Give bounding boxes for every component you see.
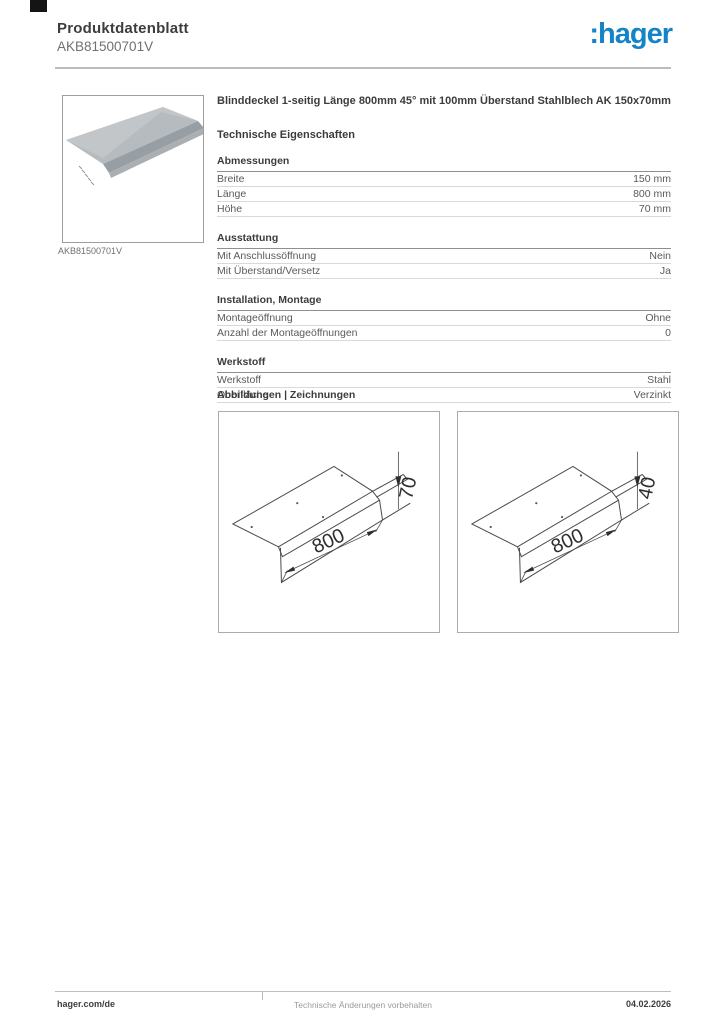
product-image [63,96,203,242]
technical-drawing-1: 800 70 [218,411,440,633]
datasheet-page: Produktdatenblatt AKB81500701V :hager AK… [0,0,724,1024]
footer-divider [262,991,263,1000]
drawings-title: Abbildungen | Zeichnungen [217,389,355,401]
header-rule [55,67,671,69]
spec-row-value: 800 mm [633,188,671,200]
spec-row-value: Ja [660,265,671,277]
footer-rule [55,991,671,992]
technical-drawing-2: 800 40 [457,411,679,633]
corner-mark [30,0,47,12]
product-image-caption: AKB81500701V [58,246,122,256]
footer-date: 04.02.2026 [626,999,671,1009]
length-dimension-label: 800 [548,524,587,558]
spec-row-value: 0 [665,327,671,339]
spec-row: Mit Überstand/Versetz Ja [217,264,671,279]
spec-row-label: Höhe [217,203,242,215]
spec-row-label: Mit Anschlussöffnung [217,250,316,262]
height-dimension-label: 40 [634,475,660,501]
spec-section-installation: Installation, Montage Montageöffnung Ohn… [217,294,671,341]
spec-row-value: Nein [649,250,671,262]
length-dimension-label: 800 [309,524,348,558]
spec-row: Breite 150 mm [217,172,671,187]
spec-row-label: Mit Überstand/Versetz [217,265,320,277]
spec-row-label: Anzahl der Montageöffnungen [217,327,358,339]
spec-section-abmessungen: Abmessungen Breite 150 mm Länge 800 mm H… [217,155,671,217]
spec-row-label: Breite [217,173,244,185]
product-code: AKB81500701V [57,39,153,54]
spec-section-title: Abmessungen [217,155,671,172]
footer-disclaimer: Technische Änderungen vorbehalten [55,1000,671,1010]
spec-row-value: Verzinkt [634,389,671,401]
page-title: Produktdatenblatt [57,20,189,37]
spec-row-value: 150 mm [633,173,671,185]
spec-section-title: Installation, Montage [217,294,671,311]
product-image-frame [62,95,204,243]
spec-row: Werkstoff Stahl [217,373,671,388]
spec-row: Montageöffnung Ohne [217,311,671,326]
spec-row: Mit Anschlussöffnung Nein [217,249,671,264]
spec-row-label: Werkstoff [217,374,261,386]
spec-row-value: Stahl [647,374,671,386]
spec-row: Länge 800 mm [217,187,671,202]
product-description: Blinddeckel 1-seitig Länge 800mm 45° mit… [217,95,671,109]
spec-row: Anzahl der Montageöffnungen 0 [217,326,671,341]
spec-row-value: 70 mm [639,203,671,215]
height-dimension-label: 70 [395,475,421,501]
spec-row-label: Montageöffnung [217,312,293,324]
hager-logo: :hager [589,20,672,49]
spec-tables: Abmessungen Breite 150 mm Länge 800 mm H… [217,155,671,418]
spec-row-value: Ohne [645,312,671,324]
spec-section-title: Ausstattung [217,232,671,249]
spec-row-label: Länge [217,188,246,200]
spec-section-ausstattung: Ausstattung Mit Anschlussöffnung Nein Mi… [217,232,671,279]
spec-section-title: Werkstoff [217,356,671,373]
tech-properties-title: Technische Eigenschaften [217,129,671,141]
spec-row: Höhe 70 mm [217,202,671,217]
